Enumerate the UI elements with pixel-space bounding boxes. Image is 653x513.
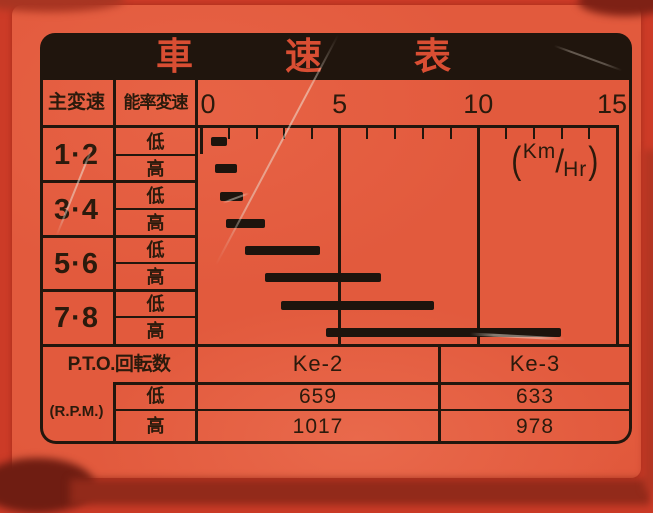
axis-gridline-10: [477, 125, 480, 346]
pto-ke3-high-value: 978: [441, 411, 629, 441]
axis-minor-tick: [533, 128, 535, 139]
axis-gridline-15: [616, 125, 619, 346]
axis-gridline-5: [338, 125, 341, 346]
pto-column-ke2: Ke-2: [198, 346, 438, 382]
axis-minor-tick: [228, 128, 230, 139]
paint-shadow: [644, 150, 653, 490]
axis-minor-tick: [561, 128, 563, 139]
axis-minor-tick: [394, 128, 396, 139]
axis-minor-tick: [588, 128, 590, 139]
speed-bar: [215, 164, 237, 173]
speed-bar: [211, 137, 228, 146]
axis-minor-tick: [311, 128, 313, 139]
plate-title: 車速表: [40, 38, 543, 75]
pto-column-ke3: Ke-3: [441, 346, 629, 382]
axis-minor-tick: [450, 128, 452, 139]
axis-minor-tick: [505, 128, 507, 139]
axis-minor-tick: [422, 128, 424, 139]
pto-header: P.T.O.回転数: [42, 346, 196, 382]
axis-minor-tick: [256, 128, 258, 139]
speed-label-sticker: 車速表 主変速 能率変速 0 5 10: [12, 5, 641, 478]
axis-zero-tick: [200, 128, 203, 154]
pto-ke2-low-value: 659: [198, 383, 438, 409]
pto-high-label: 高: [115, 411, 196, 441]
pto-ke3-low-value: 633: [441, 383, 629, 409]
speed-bar: [281, 301, 434, 310]
speed-table: 主変速 能率変速 0 5 10 15 ( Km / Hr ) 1·2 3·4 5…: [40, 80, 632, 444]
paint-shadow: [70, 479, 650, 505]
pto-rpm-unit: (R.P.M.): [40, 382, 113, 441]
speed-bar: [245, 246, 320, 255]
pto-ke2-high-value: 1017: [198, 411, 438, 441]
speed-bar: [265, 273, 382, 282]
pto-low-label: 低: [115, 383, 196, 409]
axis-minor-tick: [366, 128, 368, 139]
speed-bar: [226, 219, 265, 228]
machine-surface: 車速表 主変速 能率変速 0 5 10: [0, 0, 653, 490]
